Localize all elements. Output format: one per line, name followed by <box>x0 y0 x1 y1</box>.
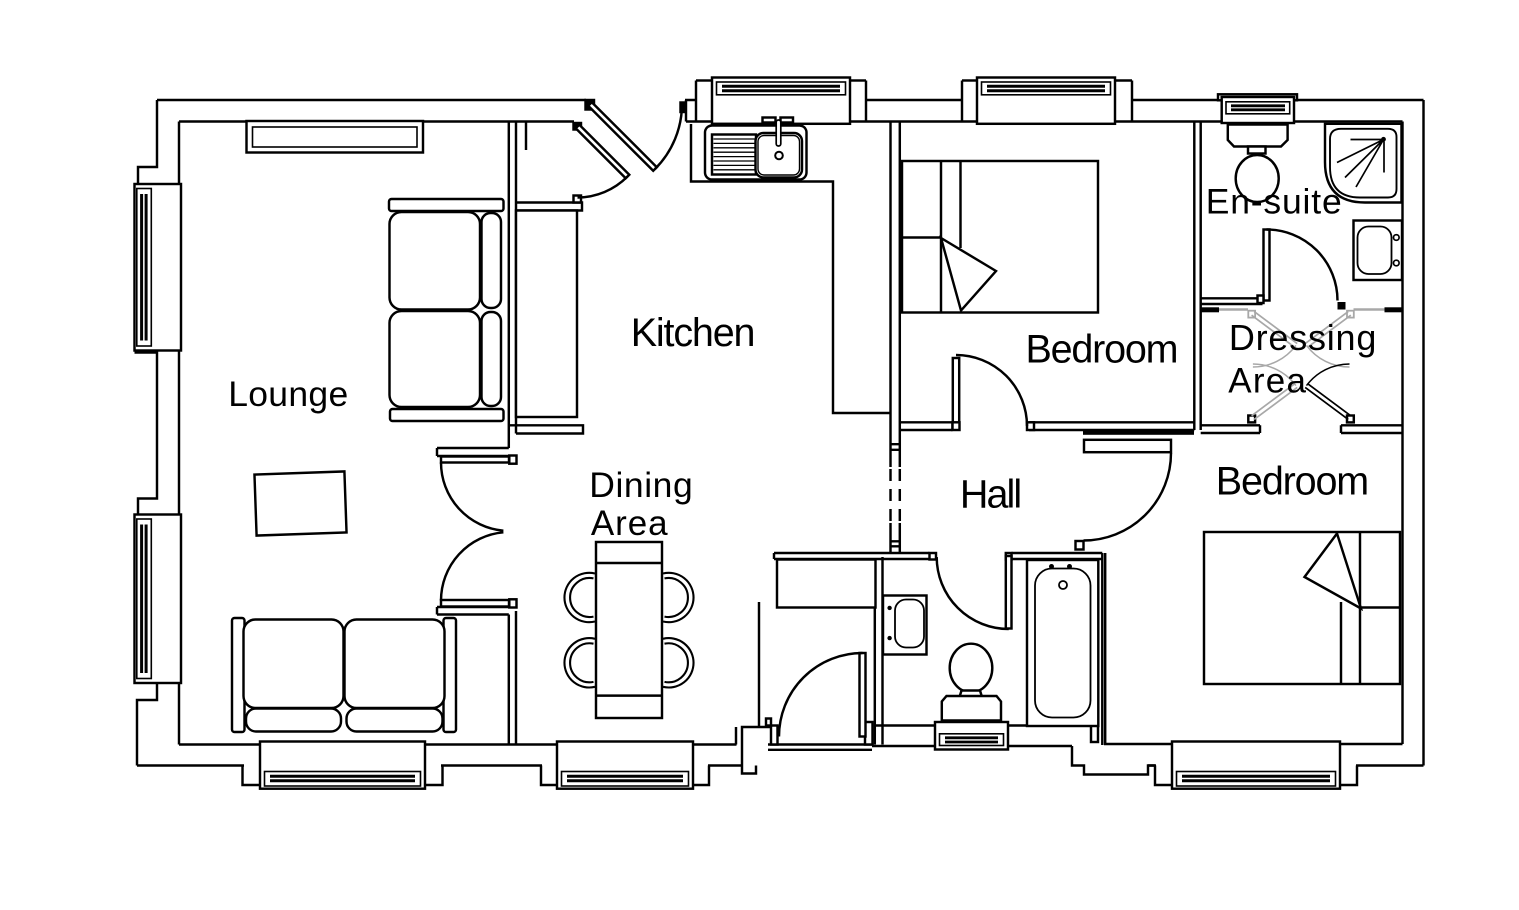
svg-text:Hall: Hall <box>960 472 1022 516</box>
svg-text:Dressing: Dressing <box>1229 317 1377 358</box>
svg-text:En-suite: En-suite <box>1206 182 1342 222</box>
svg-text:Area: Area <box>1228 361 1306 400</box>
svg-text:Area: Area <box>591 504 668 543</box>
svg-text:Bedroom: Bedroom <box>1216 460 1369 504</box>
svg-text:Kitchen: Kitchen <box>631 311 756 355</box>
svg-text:Bedroom: Bedroom <box>1026 327 1179 371</box>
svg-text:Dining: Dining <box>589 465 692 505</box>
svg-text:Lounge: Lounge <box>228 374 348 414</box>
